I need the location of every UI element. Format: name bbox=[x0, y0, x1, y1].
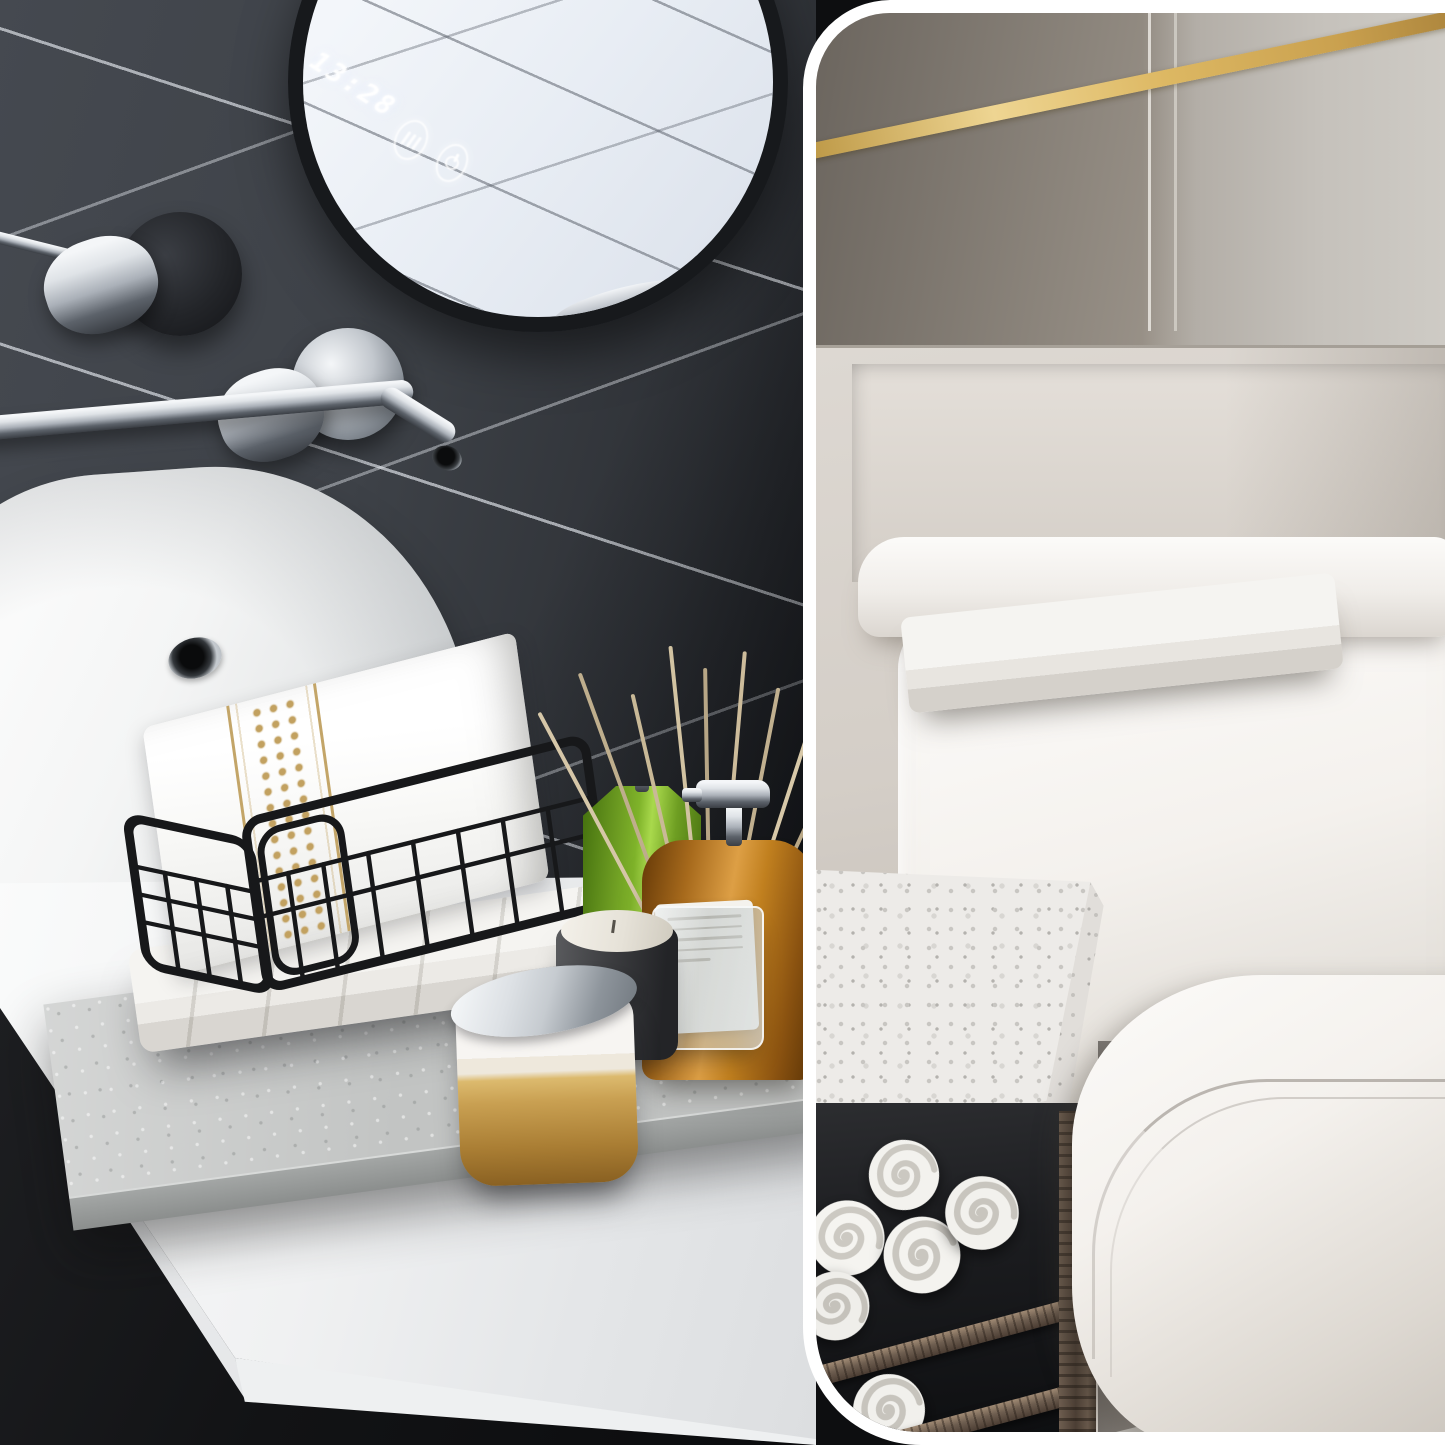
product-photo-canvas: 13:28 bbox=[0, 0, 1445, 1445]
soap-pump-head bbox=[696, 780, 770, 808]
towel-spiral bbox=[931, 1162, 1032, 1263]
soap-pump-nozzle bbox=[682, 788, 702, 802]
soap-pump-stem bbox=[726, 804, 742, 846]
reflected-floor-grout-b bbox=[303, 0, 773, 317]
toilet-scene bbox=[816, 13, 1445, 1432]
round-led-mirror: 13:28 bbox=[288, 0, 788, 332]
toilet-seat bbox=[1072, 975, 1445, 1432]
inset-photo-card bbox=[803, 0, 1445, 1445]
towel-cabinet bbox=[816, 1103, 1096, 1432]
cosmetic-jar bbox=[455, 993, 639, 1187]
candle-wax bbox=[561, 910, 673, 952]
glass-edge-line bbox=[1174, 13, 1177, 331]
rolled-towel bbox=[931, 1162, 1032, 1263]
mirror-glass: 13:28 bbox=[303, 0, 773, 317]
glass-edge-line bbox=[1148, 13, 1151, 331]
left-vanity-scene: 13:28 bbox=[0, 0, 816, 1445]
